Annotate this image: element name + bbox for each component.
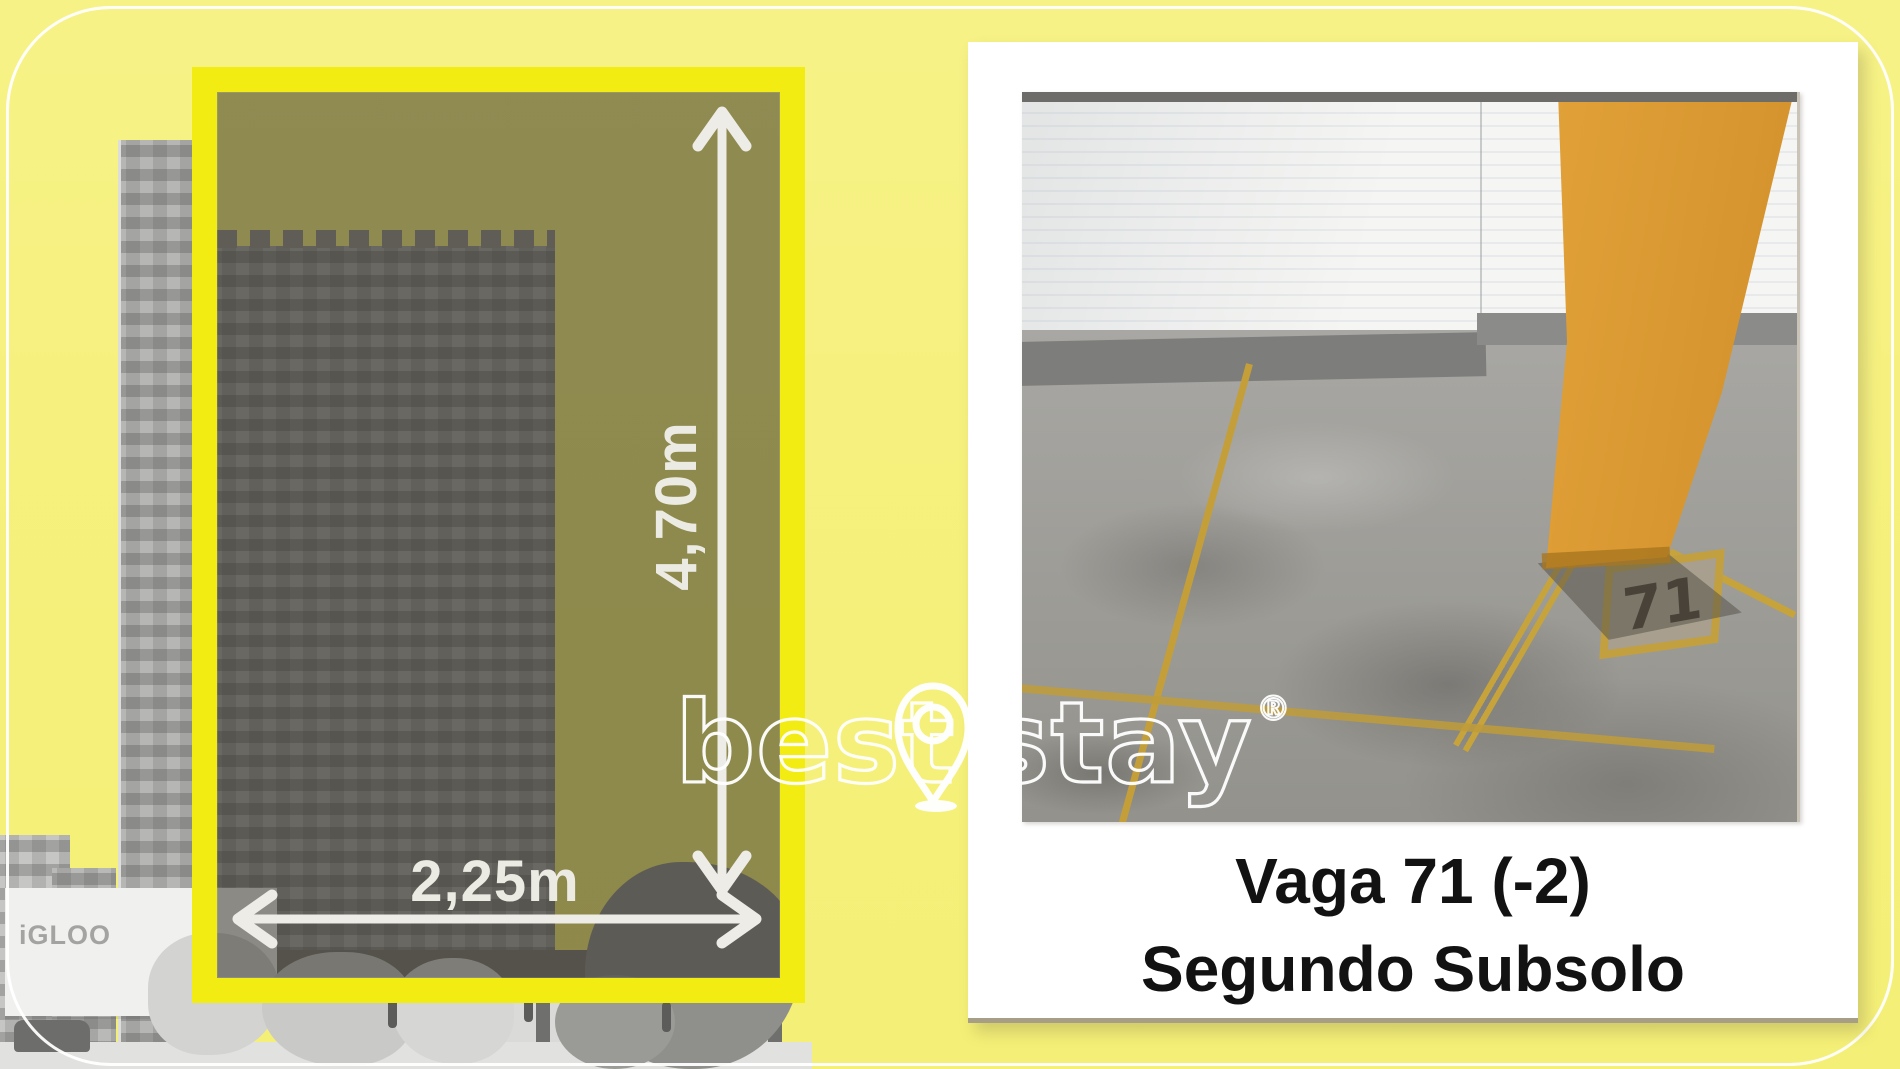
- wall-seam: [1480, 101, 1482, 339]
- photo-card: 71 Vaga 71 (-2) Segundo Subsolo: [968, 42, 1858, 1023]
- photo-caption: Vaga 71 (-2) Segundo Subsolo: [968, 837, 1858, 1014]
- width-dimension-label: 2,25m: [345, 848, 645, 915]
- listing-card: iGLOO 4,70m 2,25m: [0, 0, 1900, 1069]
- watermark-stay: stay®: [983, 688, 1287, 800]
- height-dimension-label: 4,70m: [647, 356, 707, 656]
- watermark-stay-text: stay: [983, 679, 1252, 809]
- ceiling-edge: [1022, 92, 1797, 102]
- registered-mark: ®: [1256, 689, 1291, 729]
- location-pin-icon: [886, 676, 980, 816]
- caption-line-2: Segundo Subsolo: [968, 925, 1858, 1013]
- caption-line-1: Vaga 71 (-2): [968, 837, 1858, 925]
